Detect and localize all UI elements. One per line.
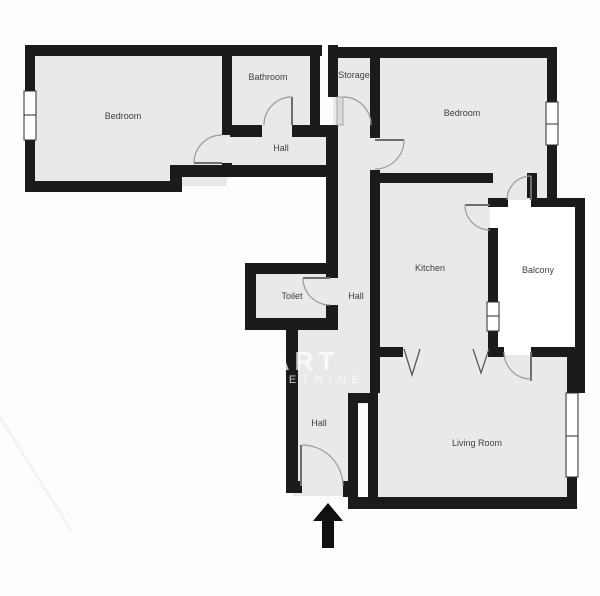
- wall-toilet-top: [245, 263, 338, 274]
- wall-bathroom-bottom-b: [292, 125, 338, 137]
- wall-toilet-right-lower: [326, 305, 338, 330]
- wall-shaft-right: [368, 403, 378, 497]
- floor-plan-canvas: ART ETNINE Bedroom Bathroom Storage Hall…: [0, 0, 600, 596]
- wall-bedroomL-bottom: [25, 181, 182, 192]
- wall-left-upper: [25, 45, 35, 91]
- room-label-storage: Storage: [338, 70, 370, 80]
- wall-entrance-right: [343, 481, 358, 497]
- wall-divider-stub: [222, 163, 232, 177]
- wall-right-upper: [547, 47, 557, 102]
- wall-corridor-left: [326, 137, 338, 263]
- bathroom-floor: [227, 50, 315, 132]
- wall-right-mid: [547, 145, 557, 200]
- room-label-balcony: Balcony: [522, 265, 555, 275]
- living-room-floor: [373, 352, 571, 502]
- wall-livingroom-bottom: [348, 497, 577, 509]
- wall-shaft-top: [348, 393, 378, 403]
- entrance-floor: [302, 481, 343, 495]
- wall-kitchen-top: [370, 173, 493, 183]
- wall-kitchen-right-b: [488, 331, 498, 357]
- room-label-hall-middle: Hall: [348, 291, 364, 301]
- wall-balcony-bottom-b: [531, 347, 583, 357]
- window-bedroom-right: [546, 102, 558, 145]
- room-label-hall-lower: Hall: [311, 418, 327, 428]
- room-label-living-room: Living Room: [452, 438, 502, 448]
- wall-kitchen-bottom: [370, 347, 403, 357]
- watermark-stroke: [250, 242, 290, 262]
- window-balcony: [487, 302, 499, 331]
- wall-hallL-bottom: [170, 165, 338, 177]
- wall-bedroomL-divider: [222, 56, 232, 135]
- window-living-room: [566, 393, 578, 477]
- wall-toilet-bottom: [245, 318, 338, 330]
- watermark-text-small: ETNINE: [289, 374, 365, 386]
- wall-balcony-right: [575, 198, 585, 357]
- window-bedroom-left: [24, 91, 36, 140]
- room-label-toilet: Toilet: [281, 291, 303, 301]
- wall-top-left: [25, 45, 322, 56]
- wall-bathroom-right: [310, 56, 320, 126]
- wall-storage-right: [370, 58, 380, 138]
- watermark-text-large: ART: [271, 346, 339, 376]
- wall-livingroom-right-upper: [567, 357, 585, 393]
- room-label-bedroom-right: Bedroom: [444, 108, 481, 118]
- room-label-kitchen: Kitchen: [415, 263, 445, 273]
- balcony-floor: [490, 200, 583, 355]
- room-label-hall-upper: Hall: [273, 143, 289, 153]
- room-label-bedroom-left: Bedroom: [105, 111, 142, 121]
- floor-plan: ART ETNINE Bedroom Bathroom Storage Hall…: [0, 0, 600, 596]
- wall-corridor-right: [370, 170, 380, 393]
- wall-kitchen-right-a: [488, 228, 498, 302]
- wall-balcony-top-a: [488, 198, 508, 207]
- watermark-stroke: [0, 417, 72, 532]
- wall-entrance-left: [286, 481, 302, 493]
- wall-top-right: [328, 47, 557, 58]
- entrance-arrow-icon: [313, 503, 343, 548]
- wall-bathroom-bottom-a: [230, 125, 262, 137]
- room-label-bathroom: Bathroom: [248, 72, 287, 82]
